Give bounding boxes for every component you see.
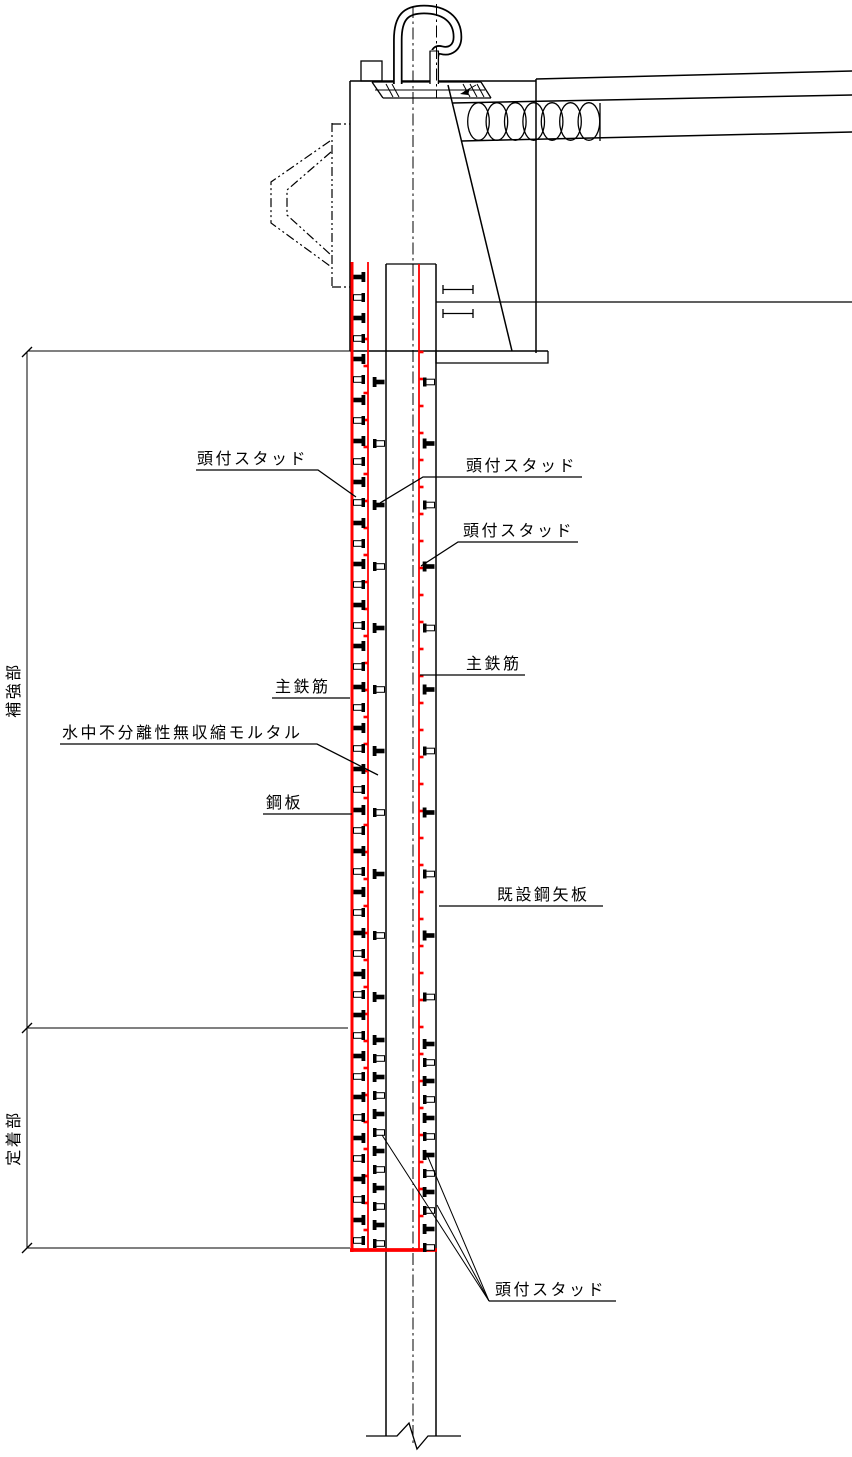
stud — [354, 541, 363, 547]
stud-head — [423, 808, 427, 818]
stud — [354, 828, 363, 834]
stud-head — [362, 867, 366, 876]
stud — [354, 1238, 363, 1244]
stud — [354, 377, 363, 383]
stud — [354, 664, 363, 670]
stud-head — [362, 354, 366, 364]
stud-head — [373, 1072, 377, 1082]
stud-head — [362, 846, 366, 856]
stud — [354, 336, 363, 342]
stud — [354, 972, 363, 977]
stud-head — [362, 457, 366, 466]
stud — [426, 1060, 435, 1066]
stud — [354, 398, 363, 403]
leader-mortar — [60, 744, 378, 775]
stud-head — [362, 293, 366, 302]
stud — [354, 1074, 363, 1080]
label-main-rebar-right: 主鉄筋 — [466, 655, 522, 673]
stud-head — [362, 498, 366, 507]
stud — [376, 503, 385, 508]
stud-head — [362, 887, 366, 897]
label-steel-plate: 鋼板 — [266, 794, 303, 812]
leader-stud-top-right — [380, 477, 582, 503]
label-stud-mid-right: 頭付スタッド — [463, 522, 574, 540]
stud-head — [423, 378, 427, 387]
stud — [354, 459, 363, 465]
stud — [354, 869, 363, 875]
stud — [354, 849, 363, 854]
label-zone-reinforcement: 補強部 — [5, 662, 23, 718]
stud-head — [362, 1072, 366, 1081]
stud-head — [362, 785, 366, 794]
studs-on-steel-plate — [354, 272, 366, 1245]
stud-head — [373, 623, 377, 633]
void-ellipses — [468, 103, 600, 141]
stud-head — [362, 1092, 366, 1102]
stud-head — [362, 395, 366, 405]
stud — [354, 726, 363, 731]
stud — [376, 441, 385, 447]
stud — [354, 1197, 363, 1203]
stud-head — [373, 1165, 377, 1174]
stud-head — [423, 1169, 427, 1178]
stud — [354, 295, 363, 301]
stud — [426, 1116, 435, 1121]
stud-head — [423, 439, 427, 449]
stud — [376, 1038, 385, 1043]
stud — [376, 1093, 385, 1099]
stud-head — [362, 764, 366, 774]
stud-head — [362, 1174, 366, 1184]
stud-head — [362, 334, 366, 343]
stud — [376, 380, 385, 385]
stud — [376, 1130, 385, 1136]
stud-head — [423, 624, 427, 633]
label-main-rebar-left: 主鉄筋 — [275, 678, 331, 696]
stud-head — [373, 1202, 377, 1211]
stud-head — [373, 377, 377, 387]
stud — [354, 582, 363, 588]
stud-head — [362, 1133, 366, 1143]
stud-head — [362, 416, 366, 425]
stud-head — [373, 562, 377, 571]
stud — [354, 418, 363, 424]
stud — [426, 1245, 435, 1251]
studs-on-pile-left-wall — [373, 377, 385, 1248]
stud-head — [362, 621, 366, 630]
stud — [376, 933, 385, 939]
stud-head — [423, 501, 427, 510]
stud-head — [362, 1010, 366, 1020]
stud-head — [423, 1206, 427, 1215]
stud — [354, 1136, 363, 1141]
stud-head — [362, 703, 366, 712]
rubber-fender-phantom — [271, 123, 350, 288]
label-stud-top-right: 頭付スタッド — [466, 457, 577, 475]
stud-head — [362, 580, 366, 589]
stud — [426, 625, 435, 631]
stud — [376, 872, 385, 877]
stud — [354, 931, 363, 936]
stud — [354, 1013, 363, 1018]
studs-on-pile-right-wall — [423, 378, 435, 1253]
stud — [426, 441, 435, 446]
stud-head — [362, 744, 366, 753]
stud-head — [362, 272, 366, 282]
stud — [426, 1227, 435, 1232]
label-stud-bottom: 頭付スタッド — [495, 1281, 606, 1299]
stud-head — [362, 1031, 366, 1040]
leader-stud-bottom-2 — [425, 1150, 489, 1301]
cap-concrete — [28, 61, 548, 363]
stud — [354, 685, 363, 690]
stud — [426, 1134, 435, 1140]
stud-head — [423, 1243, 427, 1252]
stud — [354, 767, 363, 772]
stud-head — [362, 1195, 366, 1204]
stud — [426, 564, 435, 569]
stud-head — [373, 500, 377, 510]
stud — [354, 357, 363, 362]
stud-head — [362, 662, 366, 671]
stud — [354, 951, 363, 957]
stud — [426, 379, 435, 385]
stud-head — [362, 436, 366, 446]
stud-head — [362, 1215, 366, 1225]
stud — [354, 500, 363, 506]
stud-head — [362, 559, 366, 569]
stud-head — [362, 539, 366, 548]
stud — [376, 1204, 385, 1210]
stud-head — [423, 1076, 427, 1086]
stud — [354, 746, 363, 752]
stud — [426, 1079, 435, 1084]
stud-head — [423, 747, 427, 756]
label-mortar: 水中不分離性無収縮モルタル — [62, 724, 303, 742]
stud — [376, 1186, 385, 1191]
stud — [354, 562, 363, 567]
stud-head — [373, 869, 377, 879]
stud — [354, 644, 363, 649]
stud-head — [423, 1039, 427, 1049]
tie-rod-assembly — [436, 285, 852, 318]
road-surface-line — [536, 71, 852, 79]
stud-head — [362, 723, 366, 733]
stud — [354, 1177, 363, 1182]
stud-head — [362, 477, 366, 487]
stud-head — [373, 746, 377, 756]
stud — [426, 871, 435, 877]
stud — [426, 810, 435, 815]
stud-head — [373, 992, 377, 1002]
stud — [354, 1033, 363, 1039]
stud — [376, 1223, 385, 1228]
stud-head — [362, 826, 366, 835]
stud — [354, 1156, 363, 1162]
stud — [426, 502, 435, 508]
stud-head — [373, 1128, 377, 1137]
stud — [354, 439, 363, 444]
stud-head — [373, 1146, 377, 1156]
stud-head — [373, 1091, 377, 1100]
stud-head — [362, 908, 366, 917]
stud — [376, 995, 385, 1000]
stud-head — [423, 931, 427, 941]
stud-head — [373, 1035, 377, 1045]
stud — [354, 890, 363, 895]
stud — [426, 933, 435, 938]
section-drawing-canvas: 頭付スタッド 頭付スタッド 頭付スタッド 主鉄筋 主鉄筋 水中不分離性無収縮モル… — [0, 0, 852, 1457]
stud — [376, 626, 385, 631]
leader-stud-bottom-3 — [437, 1205, 489, 1301]
leader-stud-top-left — [196, 470, 356, 497]
stud — [376, 810, 385, 816]
stud — [376, 687, 385, 693]
deck-slab-top-line — [453, 95, 852, 103]
stud-head — [362, 375, 366, 384]
stud-head — [423, 1132, 427, 1141]
annotations: 頭付スタッド 頭付スタッド 頭付スタッド 主鉄筋 主鉄筋 水中不分離性無収縮モル… — [5, 450, 616, 1301]
stud — [426, 994, 435, 1000]
stud-head — [423, 993, 427, 1002]
stud — [426, 1097, 435, 1103]
engineering-drawing-page: 頭付スタッド 頭付スタッド 頭付スタッド 主鉄筋 主鉄筋 水中不分離性無収縮モル… — [0, 0, 852, 1457]
cap-bottom-lip — [436, 351, 548, 363]
stud-head — [362, 1236, 366, 1245]
stud — [354, 316, 363, 321]
stud-head — [362, 990, 366, 999]
stud — [426, 1171, 435, 1177]
stud — [376, 1075, 385, 1080]
curb-block — [361, 61, 382, 81]
stud-head — [362, 313, 366, 323]
stud-head — [423, 1095, 427, 1104]
stud — [354, 603, 363, 608]
stud-head — [362, 1113, 366, 1122]
stud — [376, 1241, 385, 1247]
stud-head — [362, 928, 366, 938]
stud — [354, 787, 363, 793]
label-existing-sheet-pile: 既設鋼矢板 — [497, 886, 590, 904]
label-stud-top-left: 頭付スタッド — [197, 450, 308, 468]
cap-back-slope — [448, 85, 512, 351]
leader-stud-mid-right — [421, 542, 578, 566]
stud-head — [423, 1224, 427, 1234]
stud-head — [362, 682, 366, 692]
stud — [354, 808, 363, 813]
stud — [354, 1095, 363, 1100]
stud-head — [373, 1220, 377, 1230]
stud-head — [373, 1183, 377, 1193]
stud — [426, 1190, 435, 1195]
stud — [376, 1149, 385, 1154]
stud — [354, 623, 363, 629]
stud — [376, 564, 385, 570]
stud-head — [423, 1058, 427, 1067]
stud-head — [362, 641, 366, 651]
label-zone-anchorage: 定着部 — [5, 1110, 23, 1166]
stud-head — [362, 600, 366, 610]
stud — [354, 1054, 363, 1059]
stud — [354, 275, 363, 280]
stud-head — [373, 1109, 377, 1119]
deck-slab-bottom-line — [462, 132, 852, 141]
stud — [376, 1112, 385, 1117]
stud-head — [423, 870, 427, 879]
stud-head — [423, 1187, 427, 1197]
stud — [354, 521, 363, 526]
stud-head — [373, 685, 377, 694]
stud-head — [362, 1051, 366, 1061]
stud-head — [362, 1154, 366, 1163]
stud — [426, 748, 435, 754]
stud-head — [373, 808, 377, 817]
stud-head — [362, 805, 366, 815]
hook-pipe — [398, 10, 458, 85]
stud — [354, 1115, 363, 1121]
stud-head — [362, 949, 366, 958]
stud — [354, 1218, 363, 1223]
stud-head — [373, 439, 377, 448]
stud — [426, 1042, 435, 1047]
stud-head — [373, 931, 377, 940]
stud — [376, 1056, 385, 1062]
stud-head — [423, 1113, 427, 1123]
stud — [426, 687, 435, 692]
stud-head — [373, 1054, 377, 1063]
stud — [354, 992, 363, 998]
stud-head — [362, 969, 366, 979]
stud — [354, 705, 363, 711]
stud-head — [373, 1239, 377, 1248]
stud — [354, 480, 363, 485]
stud — [376, 749, 385, 754]
stud — [354, 910, 363, 916]
stud-head — [362, 518, 366, 528]
stud-head — [423, 685, 427, 695]
stud — [376, 1167, 385, 1173]
